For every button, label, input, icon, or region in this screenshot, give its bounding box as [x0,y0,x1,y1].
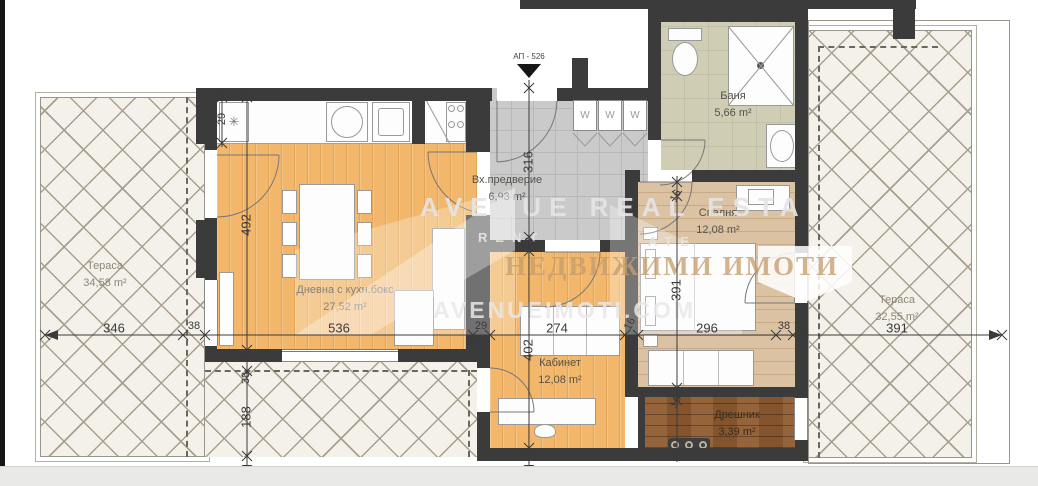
dim-wall-terrace-living: 38 [188,320,200,332]
dim-wall-living-entry: 29 [475,320,487,332]
dim-bedroom-height: 391 [669,279,684,301]
dim-office-width: 274 [546,321,568,336]
left-edge-bar [0,0,5,486]
dim-living-width: 536 [328,321,350,336]
dim-wall-bedroom-terrace: 38 [778,320,790,332]
dim-terrace-right-width: 391 [886,321,908,336]
dimension-lines [0,0,1038,486]
dim-living-height: 492 [239,214,254,236]
floorplan-canvas: ✳ W W W [0,0,1038,486]
dim-strip-depth: 188 [239,406,254,428]
bottom-band [0,466,1038,486]
dim-entry-height: 316 [521,151,536,173]
dim-bedroom-width: 296 [696,321,718,336]
dim-office-height: 402 [521,339,536,361]
dim-kitchen-depth: 29 [216,113,228,125]
dim-terrace-left-width: 346 [103,321,125,336]
dim-wall-living-south: 38 [240,372,252,384]
